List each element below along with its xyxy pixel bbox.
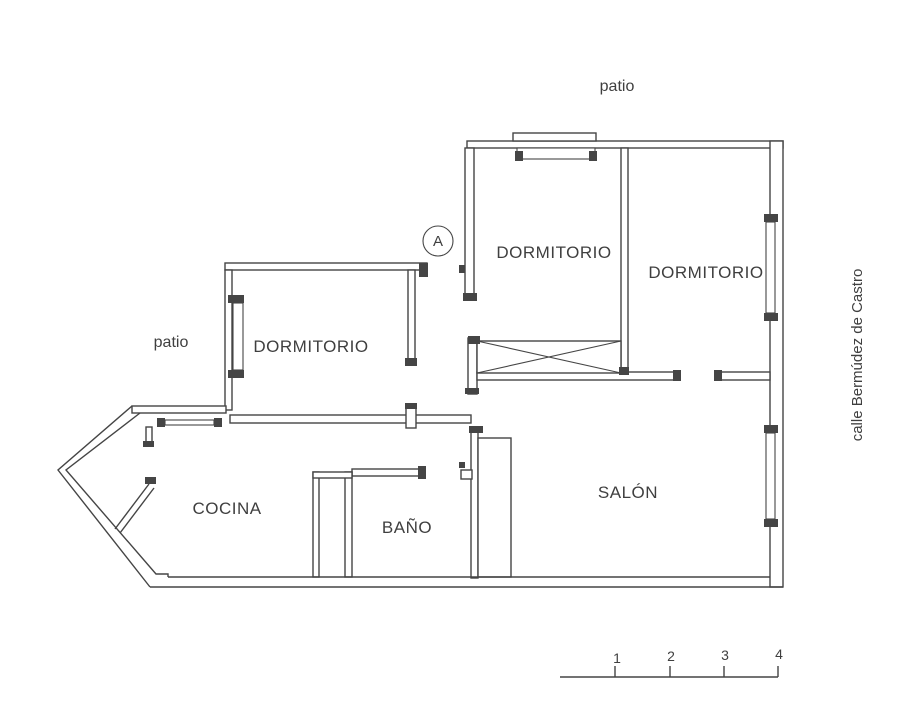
wall-cap (463, 293, 477, 301)
window-cap (764, 313, 778, 321)
wall-segment (132, 406, 226, 413)
section-marker: A (423, 226, 453, 256)
window-glass (517, 148, 595, 159)
window-sill (513, 133, 596, 141)
door-leaf (165, 420, 214, 425)
marker-a-label: A (433, 233, 443, 250)
door-cap (214, 418, 222, 427)
wall-segment (225, 263, 427, 270)
wall-cap (145, 477, 156, 484)
wall-segment (146, 427, 152, 443)
scale-label-3: 3 (721, 647, 729, 663)
wall-segment (313, 472, 352, 478)
window-cap (764, 519, 778, 527)
wall-segment (345, 472, 352, 577)
room-label-salon: SALÓN (598, 483, 658, 502)
floor-plan-drawing: A DORMITORIO DORMITORIO DORMITORIO COCIN… (0, 0, 913, 721)
wall-cap (419, 263, 428, 277)
wall-cap (673, 370, 681, 381)
door-cap (157, 418, 165, 427)
room-label-dormitorio-left: DORMITORIO (253, 337, 368, 356)
room-label-dormitorio-middle: DORMITORIO (496, 243, 611, 262)
wall-segment (478, 438, 511, 577)
window-glass (766, 433, 775, 519)
wall-outline (58, 406, 150, 587)
window-cap (764, 214, 778, 222)
wall-cap (459, 462, 465, 468)
window-cap (589, 151, 597, 161)
wall-cap (405, 403, 417, 409)
wall-cap (143, 441, 154, 447)
floor-plan-page: A DORMITORIO DORMITORIO DORMITORIO COCIN… (0, 0, 913, 721)
wall-cap (459, 265, 465, 273)
wardrobe-symbol (477, 341, 621, 373)
wall-outline (120, 488, 154, 533)
room-label-bano: BAÑO (382, 518, 432, 537)
wall-cap (469, 426, 483, 433)
wall-segment (461, 470, 472, 479)
wall-cap (714, 370, 722, 381)
wall-segment (230, 415, 471, 423)
window-glass (233, 303, 243, 370)
wall-segment (471, 427, 478, 578)
wall-segment (352, 469, 424, 476)
wall-cap (465, 388, 479, 394)
wall-segment (225, 270, 232, 410)
wall-segment (465, 148, 474, 294)
wall-segment (408, 270, 415, 365)
wall-segment (716, 372, 770, 380)
wall-cap (619, 367, 629, 375)
window-cap (228, 295, 244, 303)
window-cap (515, 151, 523, 161)
window-cap (228, 370, 244, 378)
window-cap (764, 425, 778, 433)
wall-segment (621, 148, 628, 374)
wall-segment (467, 141, 783, 148)
wall-outline (115, 484, 149, 529)
patio-label-top: patio (600, 78, 635, 95)
scale-label-2: 2 (667, 648, 675, 664)
window-glass (766, 222, 775, 313)
wall-segment (313, 472, 319, 577)
street-label: calle Bermúdez de Castro (849, 269, 866, 442)
room-label-dormitorio-right: DORMITORIO (648, 263, 763, 282)
patio-label-left: patio (154, 334, 189, 351)
wall-cap (418, 466, 426, 479)
scale-bar: 1 2 3 4 (560, 646, 783, 677)
wall-cap (468, 336, 480, 344)
wall-cap (405, 358, 417, 366)
wall-segment (468, 338, 477, 394)
room-label-cocina: COCINA (192, 499, 261, 518)
door-symbol-hall (157, 418, 222, 427)
scale-label-1: 1 (613, 650, 621, 666)
scale-label-4: 4 (775, 646, 783, 662)
